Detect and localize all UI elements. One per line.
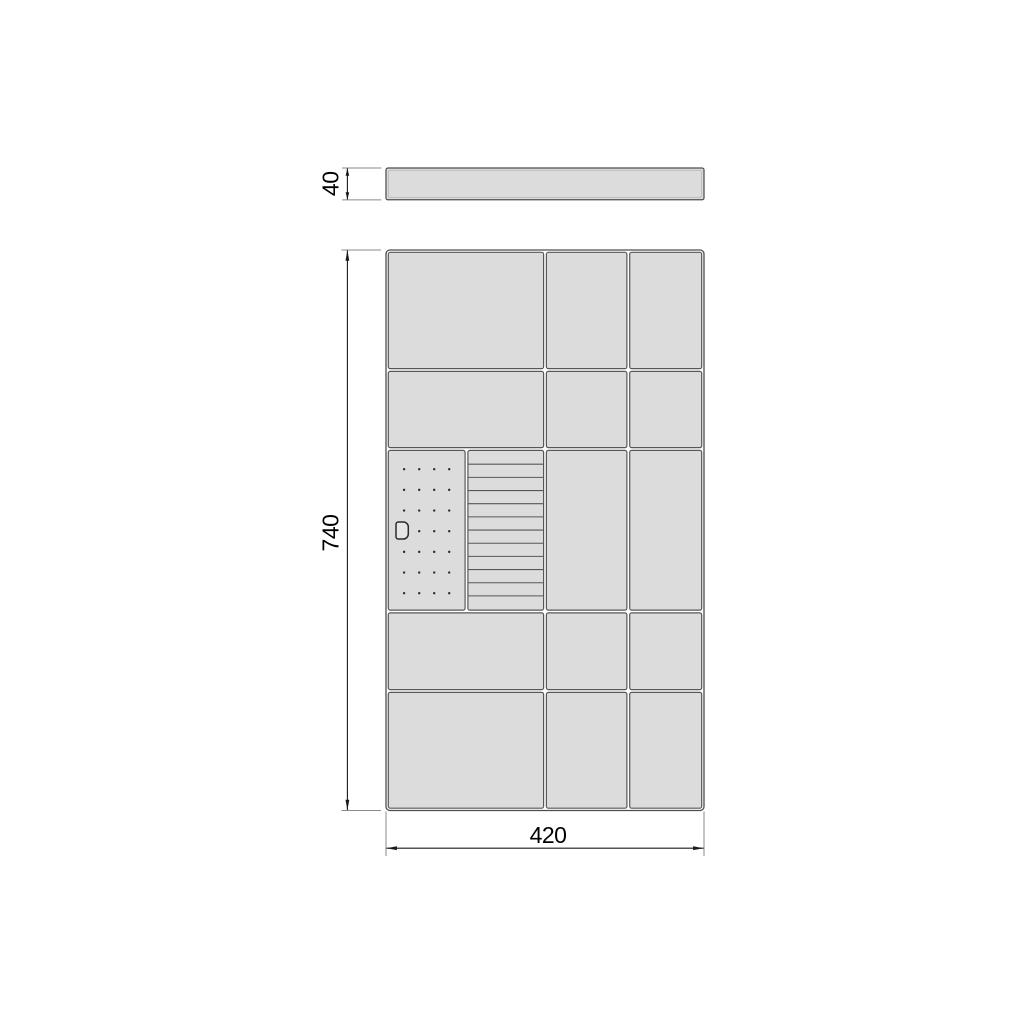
svg-text:40: 40: [318, 172, 344, 197]
svg-text:420: 420: [530, 822, 567, 848]
svg-text:740: 740: [318, 515, 344, 552]
